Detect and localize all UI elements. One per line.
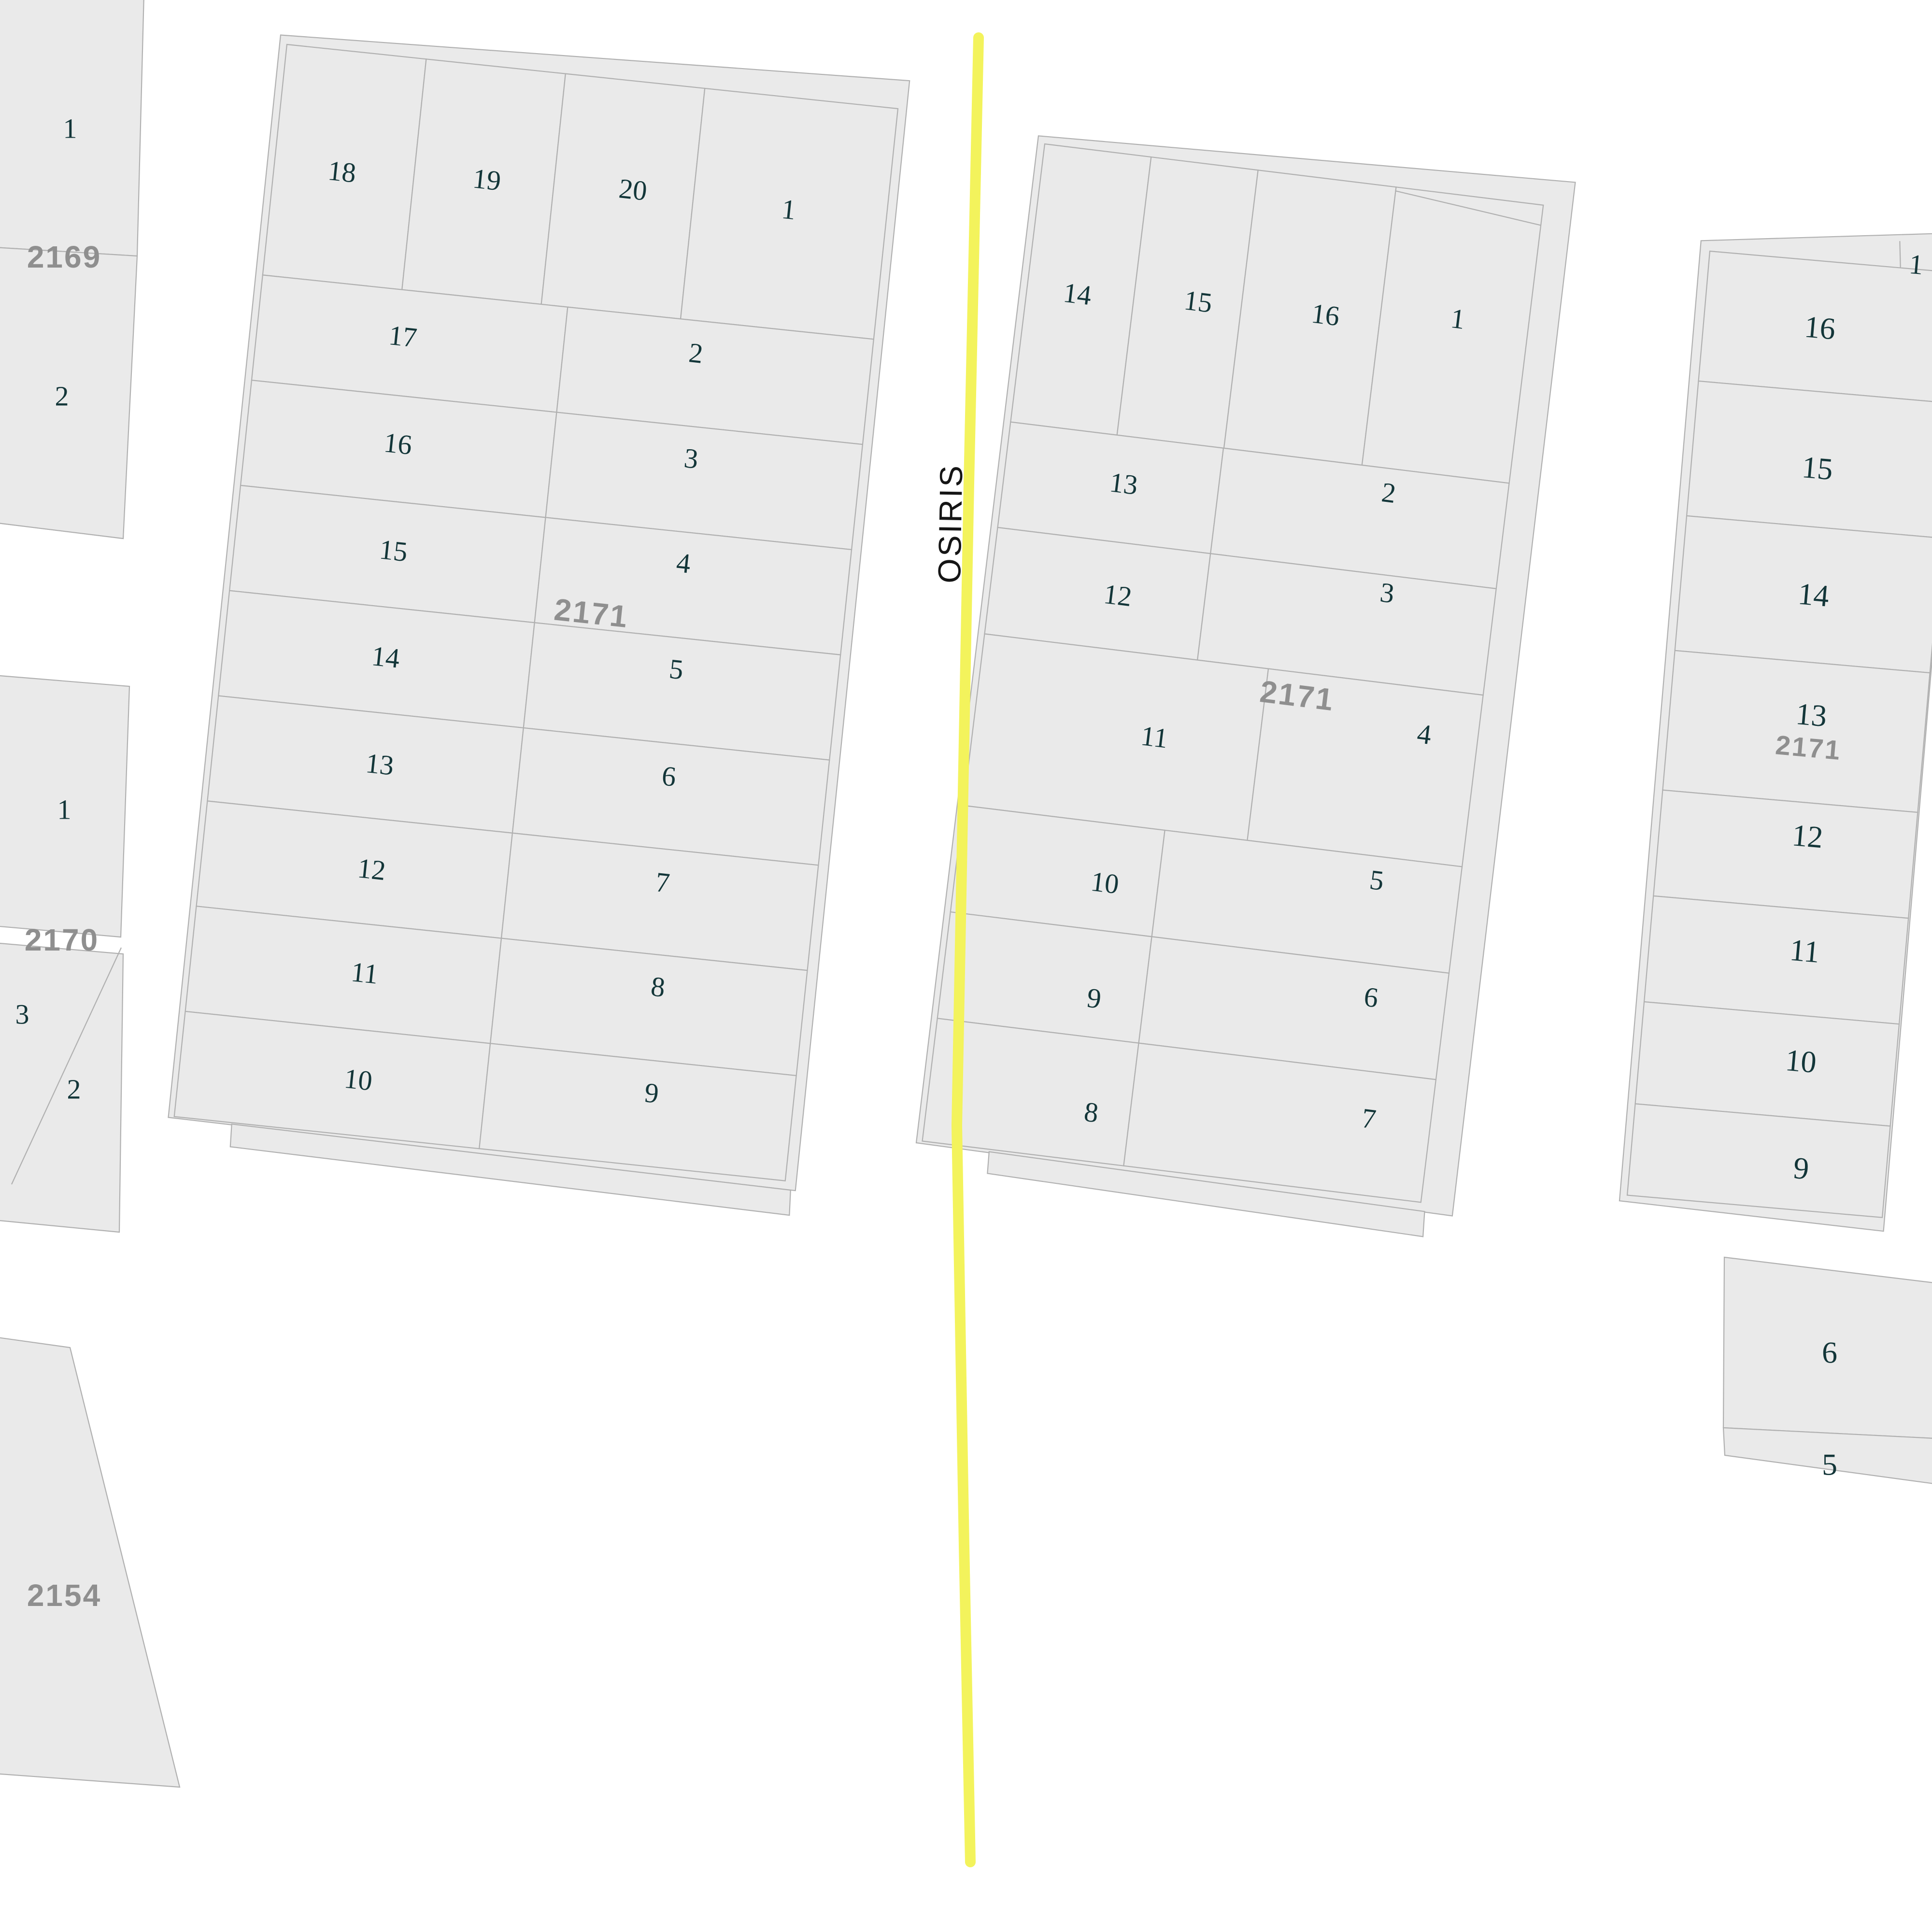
- lot-label: 11: [1789, 933, 1821, 969]
- lot-label: 1: [1908, 248, 1925, 281]
- parcel-2170-lower[interactable]: [0, 943, 123, 1232]
- parcel-2154[interactable]: [0, 1337, 180, 1787]
- lot-label: 15: [378, 533, 409, 568]
- lot-label: 14: [1062, 277, 1093, 312]
- lot-label: 15: [1801, 450, 1834, 486]
- lot-label: 18: [327, 155, 357, 189]
- lot-label: 13: [1108, 466, 1139, 501]
- lot-label: 10: [1784, 1043, 1818, 1080]
- lot-label: 13: [364, 747, 395, 781]
- lot-label: 15: [1182, 284, 1214, 319]
- lot-label: 12: [1790, 818, 1824, 854]
- block-label-2169: 2169: [27, 240, 101, 274]
- block-2169: 1 2169 2: [0, 0, 144, 539]
- block-label-2154: 2154: [27, 1578, 101, 1613]
- lot-label: 13: [1794, 696, 1828, 733]
- lot-label: 9: [1792, 1151, 1810, 1186]
- lot-label: 1: [63, 113, 77, 144]
- lot-label: 6: [1822, 1335, 1837, 1370]
- lot-label: 12: [1102, 578, 1134, 613]
- block-label-2170: 2170: [25, 923, 99, 957]
- lot-label: 12: [356, 852, 387, 886]
- lot-label: 19: [471, 162, 502, 197]
- map-canvas: 1 2169 2 1 2170 3 2 2154: [0, 0, 1932, 1932]
- street-osiris-label: OSIRIS: [931, 463, 969, 583]
- block-2154: 2154: [0, 1337, 180, 1787]
- lot-label: 10: [343, 1063, 374, 1097]
- lot-label: 20: [617, 172, 648, 207]
- lot-label: 11: [1139, 720, 1169, 754]
- block-2171-east: 14 15 16 1 13 2 12 3 2171 11 4 10 5 9 6 …: [911, 117, 1579, 1240]
- lot-label: 11: [350, 956, 380, 990]
- lot-label: 16: [1803, 309, 1837, 346]
- lot-label: 5: [1822, 1448, 1837, 1482]
- block-2171-right: 1 16 15 14 13 2171 12 11 10 9: [1617, 210, 1932, 1231]
- lot-label: 10: [1089, 866, 1121, 900]
- block-2170: 1 2170 3 2: [0, 675, 129, 1232]
- lot-label: 14: [370, 640, 401, 674]
- lot-label: 16: [1310, 298, 1341, 332]
- lot-label: 3: [15, 999, 29, 1030]
- block-2171-west: 18 19 20 1 17 2 16 3 15 4 2171 14 5 13 6…: [163, 15, 912, 1216]
- lot-label: 2: [55, 381, 69, 412]
- block-label-2171-right: 2171: [1774, 729, 1843, 766]
- lot-label: 14: [1797, 576, 1831, 613]
- lot-label: 2: [67, 1074, 81, 1105]
- lot-label: 17: [387, 319, 418, 354]
- lot-label: 1: [57, 794, 71, 825]
- block-southeast: 6 5: [1723, 1257, 1932, 1484]
- parcel-2171e-lot11[interactable]: [964, 634, 1268, 840]
- lot-label: 16: [383, 426, 413, 461]
